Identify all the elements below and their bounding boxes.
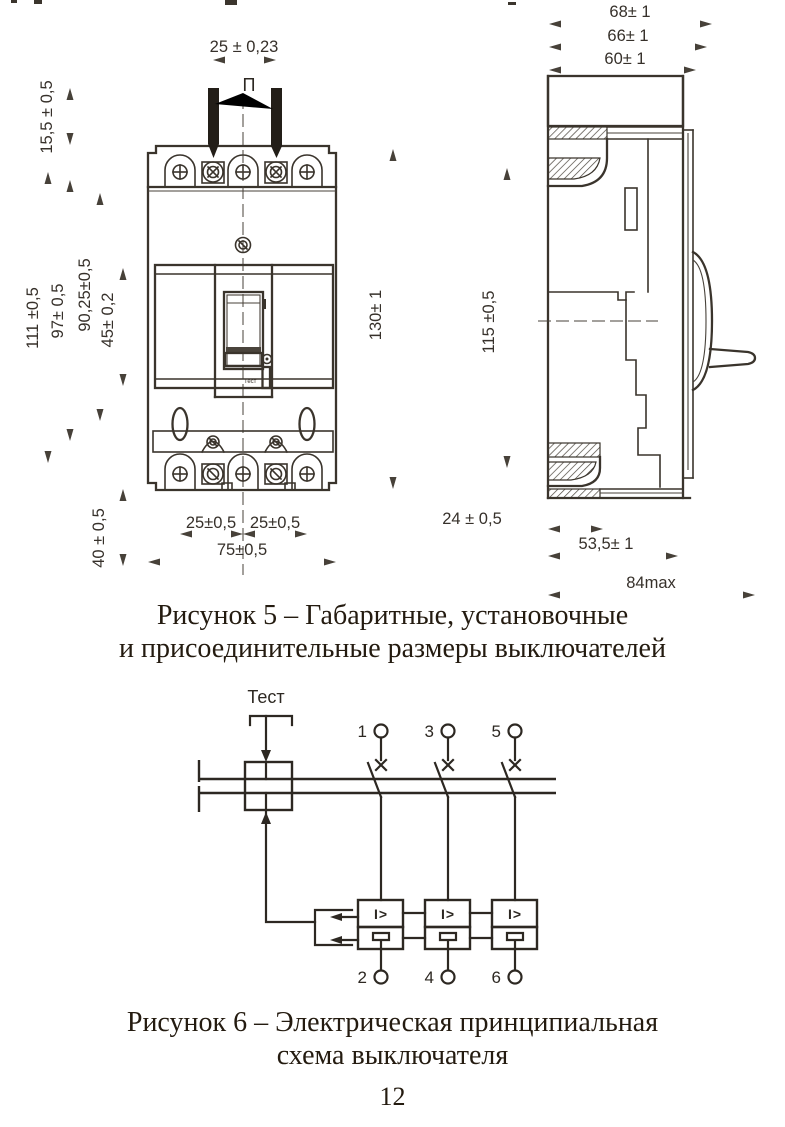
dim-height: 130± 1 xyxy=(367,290,385,340)
toggle-lever xyxy=(710,349,755,367)
document-page: Тест xyxy=(0,0,785,1127)
terminal-1-label: 1 xyxy=(358,722,367,741)
figure5-caption: Рисунок 5 – Габаритные, установочные и п… xyxy=(0,599,785,665)
mounting-slot-right xyxy=(300,408,315,440)
dim-h45: 45± 0,2 xyxy=(99,293,117,348)
overcurrent-release-symbol: I> xyxy=(508,906,522,922)
mounting-slot-left xyxy=(173,408,188,440)
latch-symbol xyxy=(507,933,523,949)
breaker-front-view: Тест xyxy=(148,88,336,575)
terminal-6-label: 6 xyxy=(492,968,501,987)
dim-width: 75±0,5 xyxy=(217,541,267,559)
dim-d84: 84max xyxy=(626,574,676,592)
dim-depth66: 66± 1 xyxy=(607,27,648,45)
terminal-pin-right xyxy=(271,88,282,158)
figure6-schematic: Тест 1 I> 2 xyxy=(0,668,785,998)
page-number: 12 xyxy=(0,1082,785,1112)
page-top-artifacts xyxy=(11,0,516,5)
handle-panel: Тест xyxy=(155,265,333,397)
latch-symbol xyxy=(373,933,389,949)
dim-pole-pitch-left: 25±0,5 xyxy=(186,514,236,532)
figure5-caption-line2: и присоединительные размеры выключателей xyxy=(0,632,785,665)
terminal-pin-left xyxy=(208,88,219,158)
dim-pin-height: 15,5 ± 0,5 xyxy=(38,80,56,153)
dim-h90: 90,25±0,5 xyxy=(76,258,94,331)
figure5-dimensional-drawing: Тест xyxy=(0,0,785,600)
dim-depth60: 60± 1 xyxy=(604,50,645,68)
terminal-2-label: 2 xyxy=(358,968,367,987)
terminal-3-label: 3 xyxy=(425,722,434,741)
dim-pin-spacing: 25 ± 0,23 xyxy=(210,38,279,56)
terminal-5-label: 5 xyxy=(492,722,501,741)
dim-h40: 40 ± 0,5 xyxy=(90,508,108,568)
overcurrent-release-symbol: I> xyxy=(441,906,455,922)
figure5-caption-line1: Рисунок 5 – Габаритные, установочные xyxy=(0,599,785,632)
dim-pole-pitch-right: 25±0,5 xyxy=(250,514,300,532)
breaker-side-view xyxy=(538,76,755,498)
pin-pitch-label: П xyxy=(243,75,256,95)
terminal-4-label: 4 xyxy=(425,968,434,987)
side-view-dimensions: 68± 1 66± 1 60± 1 115 ±0,5 24 ± 0,5 53,5… xyxy=(442,3,755,600)
overcurrent-release-symbol: I> xyxy=(374,906,388,922)
test-label: Тест xyxy=(247,687,284,707)
dim-depth68: 68± 1 xyxy=(609,3,650,21)
dim-d24: 24 ± 0,5 xyxy=(442,510,502,528)
dim-h115: 115 ±0,5 xyxy=(480,291,498,354)
test-button-label: Тест xyxy=(244,379,257,385)
pole-2: 3 I> 4 xyxy=(425,722,492,987)
dim-h111: 111 ±0,5 xyxy=(24,287,42,349)
dim-d53: 53,5± 1 xyxy=(579,535,634,553)
latch-symbol xyxy=(440,933,456,949)
dim-h97: 97± 0,5 xyxy=(49,284,67,339)
figure6-caption-line2: схема выключателя xyxy=(0,1039,785,1072)
figure6-caption: Рисунок 6 – Электрическая принципиальная… xyxy=(0,1006,785,1072)
figure6-caption-line1: Рисунок 6 – Электрическая принципиальная xyxy=(0,1006,785,1039)
pole-1: 1 I> 2 xyxy=(358,722,425,987)
pole-3: 5 I> 6 xyxy=(492,722,537,987)
